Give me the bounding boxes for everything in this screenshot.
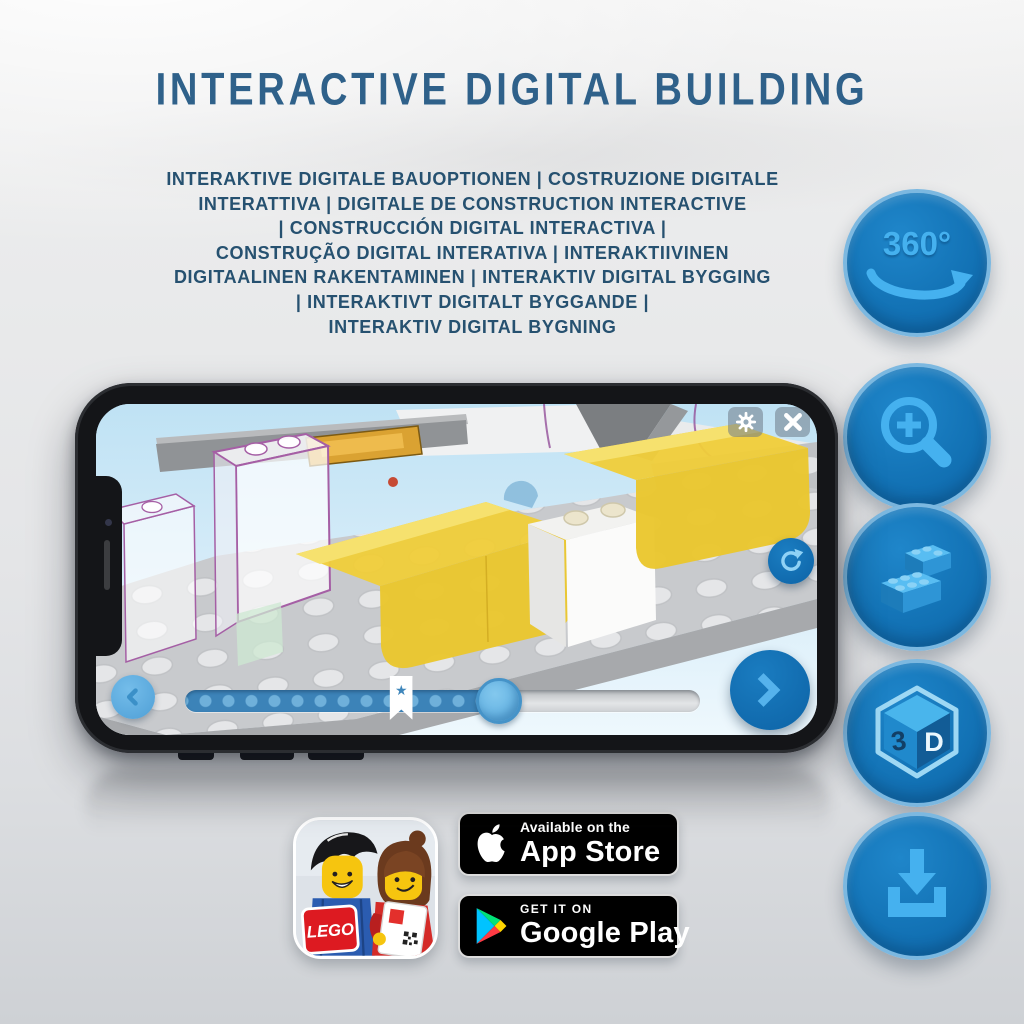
subtitle: INTERAKTIVE DIGITALE BAUOPTIONEN | COSTR…: [115, 167, 830, 339]
360-rotation-icon: [863, 265, 975, 307]
phone-screen: ★: [96, 404, 817, 735]
chevron-right-icon: [744, 664, 796, 716]
next-step-button[interactable]: [730, 650, 810, 730]
subtitle-line: | CONSTRUCCIÓN DIGITAL INTERACTIVA |: [115, 216, 830, 241]
subtitle-line: DIGITAALINEN RAKENTAMINEN | INTERAKTIV D…: [115, 265, 830, 290]
phone-reflection: [85, 768, 830, 848]
close-icon: [783, 412, 803, 432]
refresh-icon: [776, 546, 806, 576]
google-play-tagline: GET IT ON: [520, 903, 690, 916]
3d-cube-icon: 3 D: [867, 683, 967, 783]
lego-3d-model: [96, 404, 817, 735]
feature-3d-view: 3 D: [843, 659, 991, 807]
settings-button[interactable]: [728, 407, 763, 437]
phone-notch: [96, 476, 122, 656]
star-icon: ★: [395, 682, 408, 699]
subtitle-line: | INTERAKTIVT DIGITALT BYGGANDE |: [115, 290, 830, 315]
rotate-reset-button[interactable]: [768, 538, 814, 584]
slider-fill: [185, 690, 499, 712]
feature-download: [843, 812, 991, 960]
close-button[interactable]: [775, 407, 810, 437]
slider-thumb[interactable]: [476, 678, 522, 724]
gear-icon: [735, 411, 757, 433]
google-play-badge[interactable]: GET IT ON Google Play: [458, 894, 679, 958]
front-camera: [105, 519, 112, 526]
subtitle-line: CONSTRUÇÃO DIGITAL INTERATIVA | INTERAKT…: [115, 241, 830, 266]
360-label: 360°: [847, 225, 987, 263]
lego-brick-icon: [867, 527, 967, 627]
subtitle-line: INTERAKTIV DIGITAL BYGNING: [115, 315, 830, 340]
previous-step-button[interactable]: [111, 675, 155, 719]
speaker-grille: [104, 540, 110, 590]
svg-text:3: 3: [889, 725, 908, 757]
page-title: INTERACTIVE DIGITAL BUILDING: [36, 64, 988, 116]
google-play-icon: [470, 907, 514, 945]
progress-slider[interactable]: ★: [185, 690, 700, 712]
svg-text:LEGO: LEGO: [306, 919, 354, 941]
svg-text:D: D: [924, 727, 944, 757]
feature-zoom: [843, 363, 991, 511]
feature-brick: [843, 503, 991, 651]
chevron-left-icon: [119, 683, 147, 711]
subtitle-line: INTERATTIVA | DIGITALE DE CONSTRUCTION I…: [115, 192, 830, 217]
download-icon: [867, 836, 967, 936]
google-play-name: Google Play: [520, 918, 690, 948]
zoom-in-icon: [867, 387, 967, 487]
phone-mockup: ★: [75, 383, 838, 753]
poster-background: INTERACTIVE DIGITAL BUILDING INTERAKTIVE…: [0, 0, 1024, 1024]
feature-360-rotation: 360°: [843, 189, 991, 337]
subtitle-line: INTERAKTIVE DIGITALE BAUOPTIONEN | COSTR…: [115, 167, 830, 192]
